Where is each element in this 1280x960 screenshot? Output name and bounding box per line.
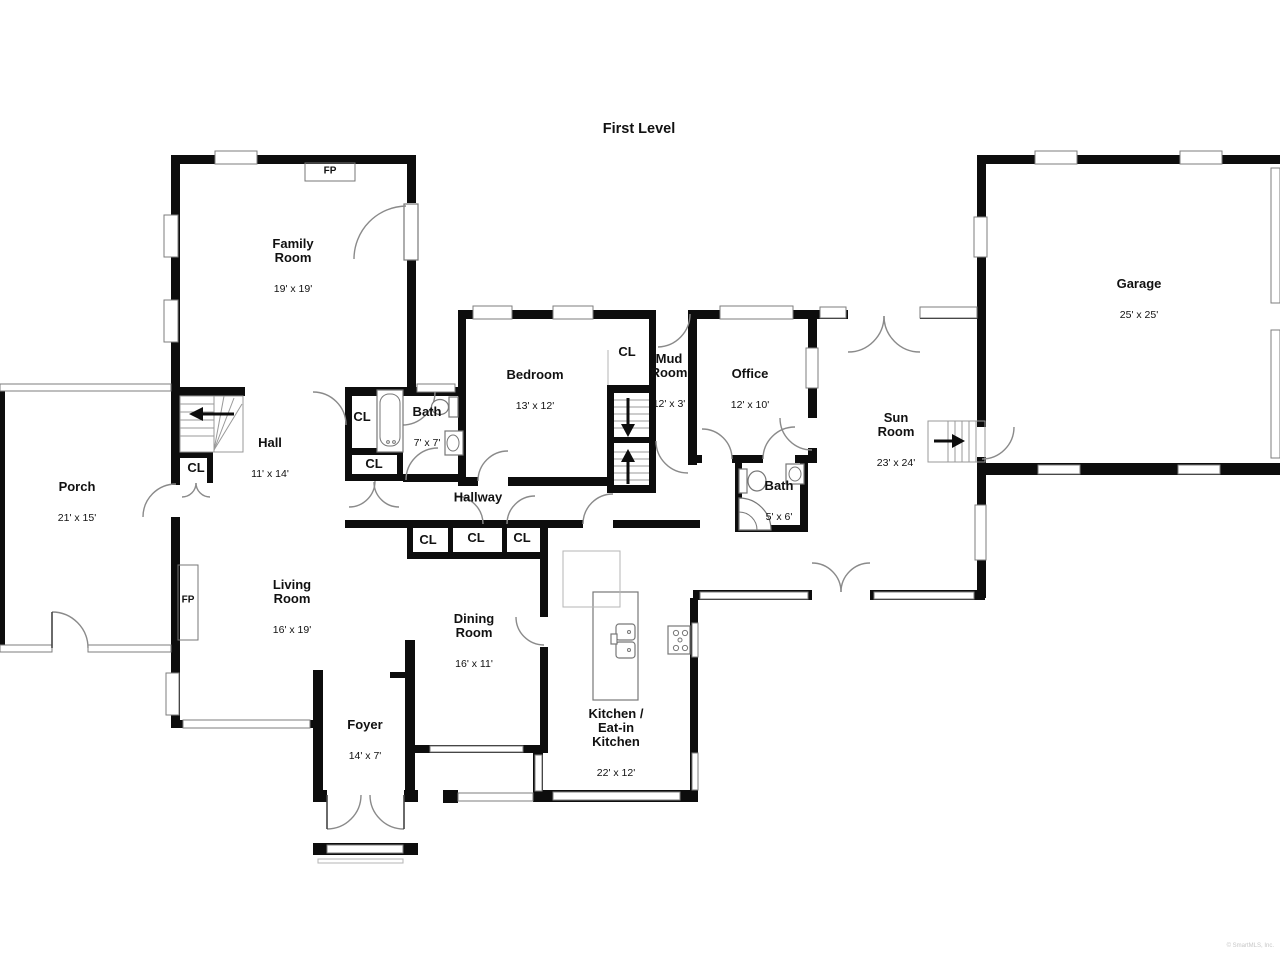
sink-bath7 — [445, 431, 463, 455]
room-label-sun-room: Sun Room 23' x 24' — [877, 394, 915, 486]
page-title: First Level — [603, 122, 676, 138]
room-name: Family Room — [272, 237, 313, 265]
room-label-living-room: Living Room 16' x 19' — [273, 561, 311, 653]
closet-label-row-3: CL — [513, 531, 530, 545]
stairs-down — [614, 398, 649, 437]
bathtub — [377, 390, 403, 452]
room-label-porch: Porch 21' x 15' — [58, 463, 96, 541]
closet-label-bath-lower: CL — [365, 457, 382, 471]
stairs-hall — [180, 396, 243, 452]
closet-label-row-2: CL — [467, 531, 484, 545]
room-label-garage: Garage 25' x 25' — [1117, 260, 1162, 338]
door-arcs — [52, 204, 1014, 829]
stairs-sunroom — [928, 421, 985, 462]
closet-label-row-1: CL — [419, 533, 436, 547]
toilet-bath5 — [739, 469, 766, 493]
closet-label-bath-upper: CL — [353, 410, 370, 424]
room-label-family-room: Family Room 19' x 19' — [272, 220, 313, 312]
floor-plan: .w{fill:#0d0d0d;} .win{fill:#ffffff;stro… — [0, 0, 1280, 960]
room-label-foyer: Foyer 14' x 7' — [347, 701, 382, 779]
room-label-dining-room: Dining Room 16' x 11' — [454, 595, 494, 687]
room-label-kitchen: Kitchen / Eat-in Kitchen 22' x 12' — [589, 690, 644, 796]
room-label-bath7: Bath 7' x 7' — [413, 388, 442, 466]
stove — [668, 626, 690, 654]
room-label-hall: Hall 11' x 14' — [251, 419, 289, 497]
room-label-hallway: Hallway — [454, 474, 502, 523]
stairs-up — [614, 449, 649, 484]
closet-label-bedroom: CL — [618, 345, 635, 359]
kitchen-island — [593, 592, 638, 700]
closet-label-hall: CL — [187, 461, 204, 475]
floor-plan-drawing: .w{fill:#0d0d0d;} .win{fill:#ffffff;stro… — [0, 0, 1280, 960]
fireplace-label-family: FP — [324, 167, 337, 178]
room-dims: 19' x 19' — [272, 284, 313, 295]
fireplace-label-living: FP — [182, 596, 195, 607]
room-label-mud-room: Mud Room 12' x 3' — [651, 335, 688, 427]
room-label-bedroom: Bedroom 13' x 12' — [506, 351, 563, 429]
room-label-bath5: Bath 5' x 6' — [765, 462, 794, 540]
copyright-text: © SmartMLS, Inc. — [1227, 943, 1274, 949]
room-label-office: Office 12' x 10' — [731, 350, 769, 428]
